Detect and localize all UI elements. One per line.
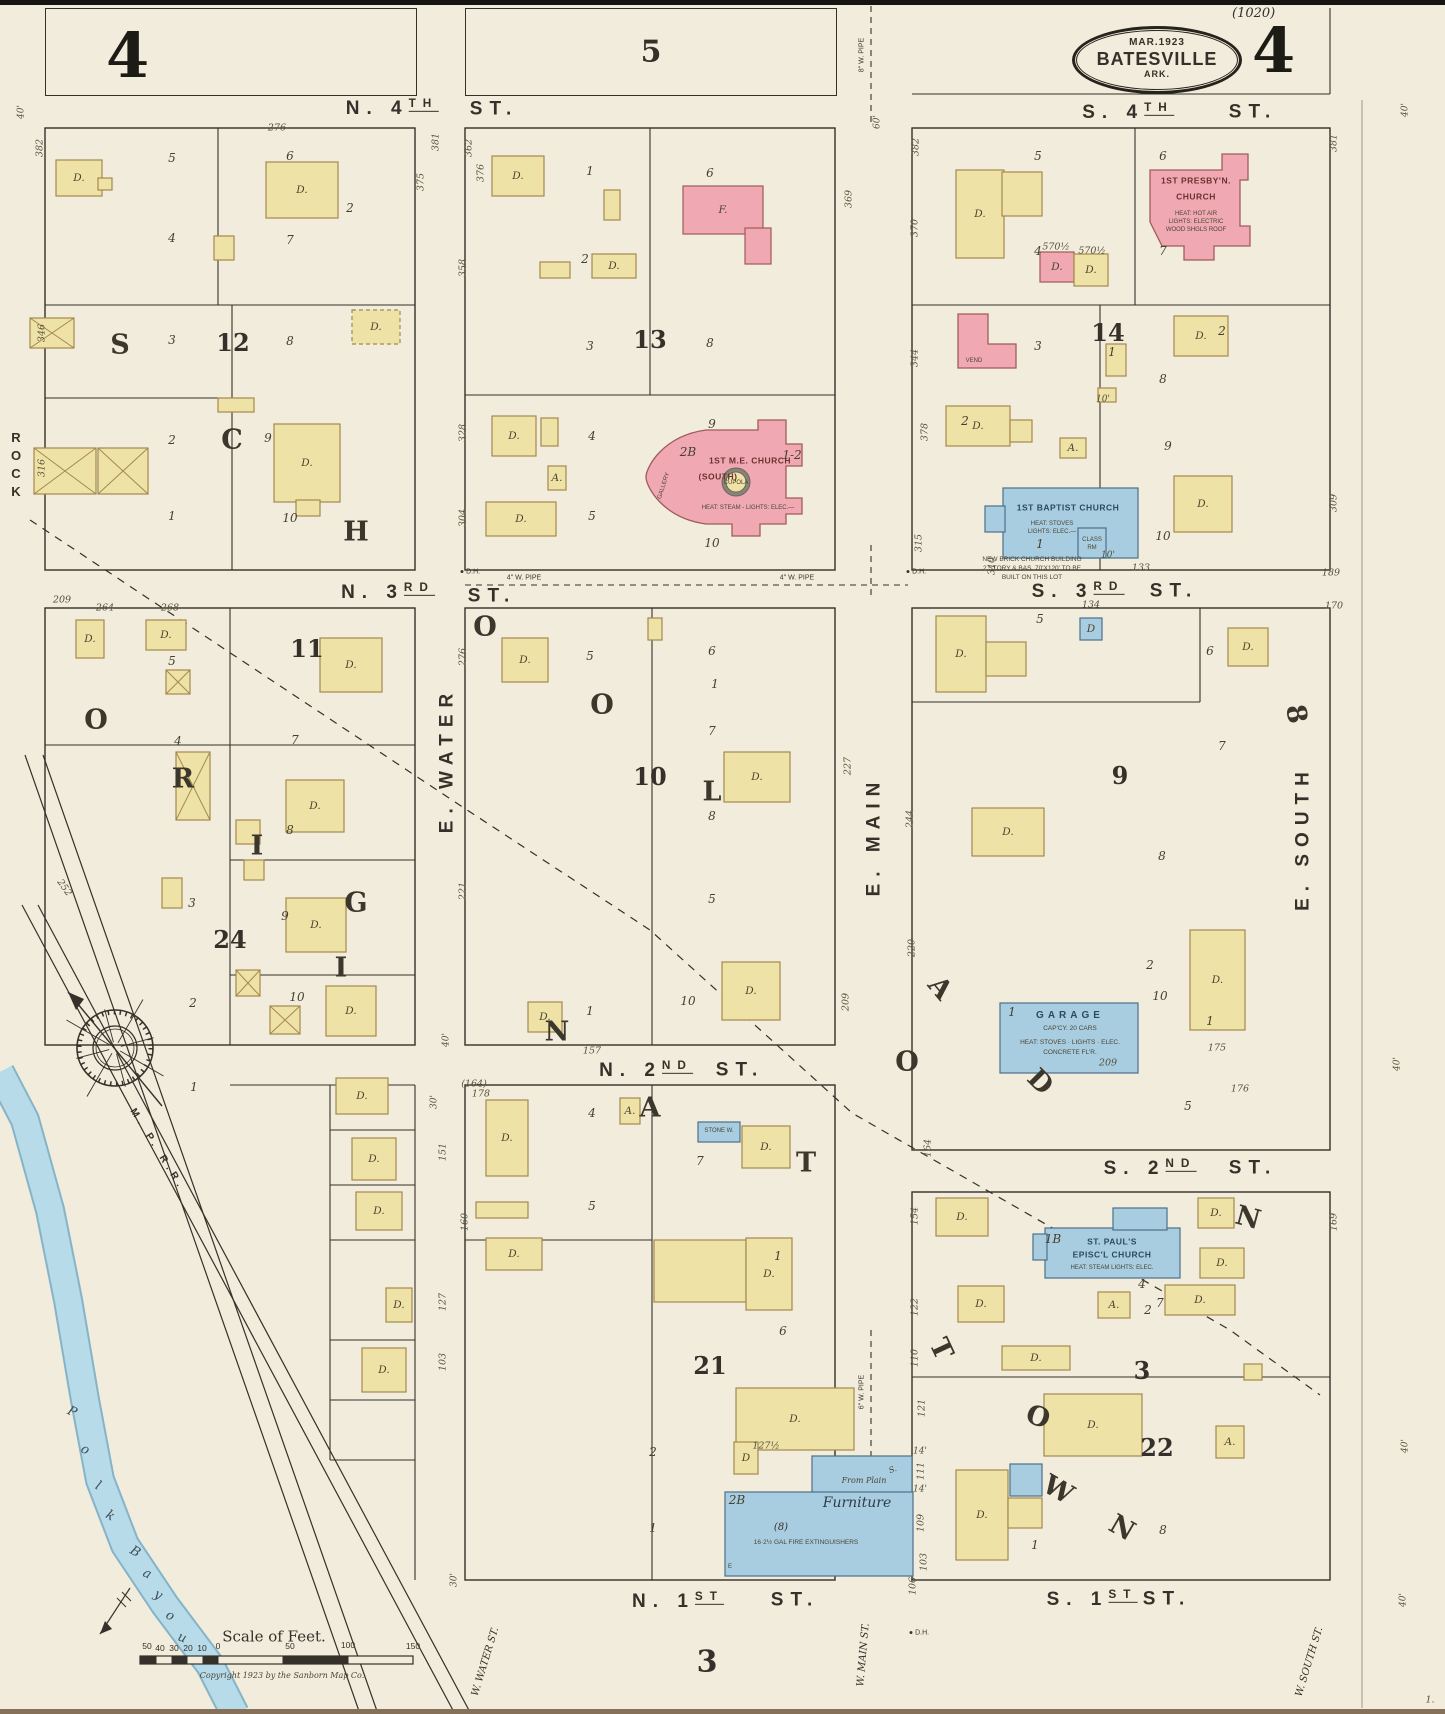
map-label: 30' bbox=[451, 1573, 460, 1587]
map-label: HEAT: STOVES · LIGHTS · ELEC. bbox=[1020, 1040, 1120, 1047]
map-label: W bbox=[1038, 1471, 1078, 1510]
map-label: 127½ bbox=[752, 1441, 779, 1451]
map-label: 1 bbox=[1036, 538, 1044, 550]
building-label: D. bbox=[976, 1510, 987, 1521]
map-label: 10 bbox=[633, 765, 666, 789]
map-label: 2 bbox=[649, 1446, 657, 1458]
map-label: 2 bbox=[1218, 325, 1226, 337]
building-label: D. bbox=[393, 1300, 404, 1311]
map-label: T bbox=[925, 1334, 958, 1364]
map-label: 346 bbox=[37, 324, 47, 342]
building-label: F. bbox=[719, 205, 728, 216]
building-label: D. bbox=[160, 630, 171, 641]
map-label: (8) bbox=[774, 1523, 788, 1533]
building-label: D bbox=[742, 1453, 750, 1464]
adjacent-sheet-number-bottom: 3 bbox=[697, 1645, 718, 1680]
map-label: 4 bbox=[588, 1107, 596, 1119]
building-label: D. bbox=[508, 1249, 519, 1260]
building-label: D. bbox=[1242, 642, 1253, 653]
map-label: HEAT: STOVES bbox=[1031, 521, 1073, 527]
building-label: D. bbox=[955, 649, 966, 660]
map-label: 2 bbox=[346, 202, 354, 214]
map-label: 10 bbox=[704, 537, 719, 549]
map-label: ST. bbox=[771, 1591, 819, 1610]
map-label: S bbox=[110, 332, 130, 359]
map-label: 9 bbox=[1112, 764, 1129, 788]
building-label: A. bbox=[552, 473, 563, 484]
map-label: M. P. R.R. bbox=[128, 1107, 187, 1193]
map-label: 30' bbox=[431, 1095, 440, 1109]
map-label: 252 bbox=[55, 878, 73, 898]
map-label: ● D.H. bbox=[460, 569, 480, 576]
map-label: 1 bbox=[190, 1081, 198, 1093]
map-label: B bbox=[128, 1544, 143, 1560]
map-label: 4 bbox=[588, 430, 596, 442]
map-date: MAR.1923 bbox=[1075, 38, 1239, 48]
map-label: 164 bbox=[923, 1139, 933, 1157]
map-label: 22 bbox=[1140, 1436, 1173, 1460]
map-label: 21 bbox=[693, 1354, 726, 1378]
map-label: 221 bbox=[458, 882, 468, 900]
map-label: Furniture bbox=[823, 1496, 892, 1510]
map-label: 14 bbox=[1091, 321, 1124, 345]
map-label: CHURCH bbox=[1176, 192, 1216, 201]
map-label: S. 1ST bbox=[1047, 1589, 1138, 1609]
building-label: A. bbox=[1225, 1437, 1236, 1448]
map-label: o bbox=[164, 1608, 176, 1623]
map-label: 8" W. PIPE bbox=[859, 38, 866, 72]
building-label: D. bbox=[373, 1206, 384, 1217]
map-label: 4" W. PIPE bbox=[507, 575, 541, 582]
building-label: D. bbox=[512, 171, 523, 182]
map-label: 1 bbox=[649, 1522, 657, 1534]
map-label: 1 bbox=[1108, 346, 1116, 358]
building-label: D. bbox=[1051, 262, 1062, 273]
map-label: 370 bbox=[910, 219, 920, 237]
map-label: 268 bbox=[161, 603, 179, 613]
map-label: 0 bbox=[216, 1642, 221, 1651]
map-label: 378 bbox=[920, 423, 930, 441]
map-label: GALLERY bbox=[657, 472, 671, 500]
map-label: l bbox=[93, 1479, 103, 1492]
map-label: 169 bbox=[1329, 1213, 1339, 1231]
map-label: 103 bbox=[919, 1553, 929, 1571]
building-label: D. bbox=[751, 772, 762, 783]
map-label: 382 bbox=[35, 139, 45, 157]
map-label: 6 bbox=[1206, 645, 1214, 657]
building-label: D. bbox=[508, 431, 519, 442]
map-label: 10 bbox=[1152, 990, 1167, 1002]
map-label: 4 bbox=[1138, 1278, 1146, 1290]
map-label: 40' bbox=[1402, 1439, 1411, 1453]
map-label: 2B bbox=[729, 1494, 745, 1506]
map-label: 151 bbox=[438, 1143, 448, 1161]
map-label: 1 bbox=[586, 1005, 594, 1017]
building-label: D. bbox=[309, 801, 320, 812]
map-label: 60' bbox=[874, 115, 883, 129]
map-label: ST. PAUL'S bbox=[1087, 1237, 1137, 1246]
map-label: 8 bbox=[1159, 373, 1167, 385]
map-label: 375 bbox=[416, 173, 426, 191]
map-label: 7 bbox=[1156, 1297, 1164, 1309]
map-label: 40' bbox=[1402, 103, 1411, 117]
map-label: 315 bbox=[914, 534, 924, 552]
adjacent-sheet-number-top: 5 bbox=[641, 35, 662, 70]
map-label: E. WATER bbox=[438, 687, 457, 833]
map-label: VEND bbox=[966, 358, 983, 364]
map-label: 3 bbox=[168, 334, 176, 346]
map-label: P bbox=[65, 1404, 78, 1419]
map-label: 178 bbox=[472, 1089, 490, 1099]
map-label: ST. bbox=[716, 1061, 764, 1080]
map-label: N. 3RD bbox=[341, 582, 435, 602]
building-label: D. bbox=[519, 655, 530, 666]
map-label: 8 bbox=[1281, 702, 1311, 725]
map-label: 10 bbox=[680, 995, 695, 1007]
map-label: 1ST PRESBY'N. bbox=[1161, 176, 1231, 185]
building-label: D. bbox=[310, 920, 321, 931]
map-label: LIGHTS: ELECTRIC bbox=[1169, 219, 1224, 225]
map-label: A bbox=[640, 1095, 661, 1122]
building-label: D. bbox=[975, 1299, 986, 1310]
map-label: 309 bbox=[1329, 494, 1339, 512]
map-label: N bbox=[545, 1019, 570, 1046]
map-label: 109 bbox=[916, 1514, 926, 1532]
map-label: N. 2ND bbox=[599, 1060, 693, 1080]
map-label: 106 bbox=[908, 1577, 918, 1595]
map-label: 5 bbox=[168, 152, 176, 164]
building-label: D. bbox=[345, 1006, 356, 1017]
map-label: 2 bbox=[581, 253, 589, 265]
map-label: 376 bbox=[476, 164, 486, 182]
title-oval: MAR.1923 BATESVILLE ARK. bbox=[1072, 26, 1242, 94]
map-label: 6 bbox=[706, 167, 714, 179]
map-label: ST. bbox=[470, 100, 518, 119]
map-label: 30 bbox=[169, 1644, 178, 1653]
map-label: 10 bbox=[282, 512, 297, 524]
map-label: 40' bbox=[443, 1033, 452, 1047]
map-label: C bbox=[221, 427, 243, 454]
map-label: 244 bbox=[905, 810, 915, 828]
map-label: 8 bbox=[286, 824, 294, 836]
map-label: 170 bbox=[1325, 601, 1343, 611]
map-label: 1. bbox=[1425, 1695, 1434, 1705]
building-label: A. bbox=[625, 1106, 636, 1117]
map-label: GARAGE bbox=[1036, 1011, 1104, 1021]
map-label: STONE W. bbox=[704, 1128, 733, 1134]
building-label: D. bbox=[73, 173, 84, 184]
building-label: D. bbox=[515, 514, 526, 525]
map-label: 2 bbox=[961, 415, 969, 427]
map-label: 13 bbox=[633, 328, 666, 352]
map-label: W. SOUTH ST. bbox=[1295, 1626, 1326, 1698]
map-label: O bbox=[473, 614, 497, 641]
sheet-bottom-edge bbox=[0, 1709, 1445, 1714]
map-label: 276 bbox=[458, 648, 468, 666]
building-label: D. bbox=[745, 986, 756, 997]
map-label: 10 bbox=[1155, 530, 1170, 542]
map-label: 127 bbox=[438, 1293, 448, 1311]
map-label: 5 bbox=[586, 650, 594, 662]
map-label: 9 bbox=[1164, 440, 1172, 452]
map-label: 7 bbox=[696, 1155, 704, 1167]
map-label: 5 bbox=[588, 510, 596, 522]
map-label: 3 bbox=[188, 897, 196, 909]
map-label: 6 bbox=[708, 645, 716, 657]
map-label: 133 bbox=[1132, 563, 1150, 573]
map-label: HEAT: HOT AIR bbox=[1175, 211, 1217, 217]
map-label: 150 bbox=[406, 1642, 420, 1651]
building-label: D. bbox=[763, 1269, 774, 1280]
map-label: 1-2 bbox=[782, 449, 801, 461]
map-label: 10' bbox=[1101, 552, 1115, 561]
map-label: 5 bbox=[1036, 613, 1044, 625]
building-label: D. bbox=[1197, 499, 1208, 510]
map-label: 276 bbox=[268, 123, 286, 133]
map-label: 2 bbox=[1144, 1304, 1152, 1316]
map-label: 1 bbox=[774, 1250, 782, 1262]
map-label: A bbox=[923, 971, 957, 1004]
map-label: 189 bbox=[1322, 568, 1340, 578]
map-label: 4 bbox=[168, 232, 176, 244]
map-label: LIGHTS: ELEC.— bbox=[1028, 529, 1076, 535]
map-label: 14' bbox=[913, 1486, 927, 1495]
map-label: 9 bbox=[281, 910, 289, 922]
map-label: 4 bbox=[174, 735, 182, 747]
map-label: 2B bbox=[680, 446, 696, 458]
page-number-left: 4 bbox=[106, 25, 149, 87]
map-label: a bbox=[141, 1566, 154, 1581]
map-label: ● D.H. bbox=[909, 1630, 929, 1637]
map-labels-layer: D.D.D.D.D.D.D.A.D.F.D.D.D.D.A.D.D.D.D.D.… bbox=[0, 0, 1445, 1714]
map-label: 382 bbox=[911, 138, 921, 156]
map-label: 362 bbox=[464, 139, 474, 157]
map-label: 7 bbox=[286, 234, 294, 246]
map-label: ● D.H. bbox=[906, 569, 926, 576]
map-label: ST. bbox=[1143, 1590, 1191, 1609]
map-label: 381 bbox=[431, 133, 441, 151]
map-label: 209 bbox=[1099, 1058, 1117, 1068]
map-label: 40' bbox=[18, 105, 27, 119]
map-label: O bbox=[895, 1049, 919, 1076]
map-label: Copyright 1923 by the Sanborn Map Co. bbox=[200, 1672, 365, 1680]
map-label: 160 bbox=[460, 1213, 470, 1231]
map-label: 40 bbox=[155, 1644, 164, 1653]
map-label: S. 2ND bbox=[1104, 1158, 1197, 1178]
map-label: 2 STORY & BAS. 70'X120' TO BE bbox=[983, 566, 1081, 573]
map-label: 10 bbox=[197, 1644, 206, 1653]
map-label: 227 bbox=[843, 757, 853, 775]
building-label: D. bbox=[760, 1142, 771, 1153]
map-label: 40' bbox=[1400, 1593, 1409, 1607]
building-label: D bbox=[1087, 624, 1095, 635]
map-label: 264 bbox=[96, 603, 114, 613]
map-label: 2 bbox=[168, 434, 176, 446]
map-label: H bbox=[343, 519, 369, 546]
map-label: 121 bbox=[917, 1399, 927, 1417]
map-label: 3 bbox=[586, 340, 594, 352]
map-label: 122 bbox=[910, 1298, 920, 1316]
map-label: 570½ bbox=[1042, 242, 1069, 252]
map-label: 1ST M.E. CHURCH bbox=[709, 456, 791, 465]
map-label: 220 bbox=[907, 939, 917, 957]
map-label: 8 bbox=[708, 810, 716, 822]
map-label: E. SOUTH bbox=[1294, 765, 1313, 911]
map-label: 316 bbox=[37, 459, 47, 477]
map-label: S. 4TH bbox=[1082, 102, 1174, 122]
building-label: D. bbox=[1002, 827, 1013, 838]
map-label: 7 bbox=[1218, 740, 1226, 752]
map-label: HEAT: STEAM LIGHTS: ELEC. bbox=[1071, 1265, 1154, 1271]
map-label: ST. bbox=[1229, 1159, 1277, 1178]
sanborn-map-sheet: D.D.D.D.D.D.D.A.D.F.D.D.D.D.A.D.D.D.D.D.… bbox=[0, 0, 1445, 1714]
map-label: 209 bbox=[53, 595, 71, 605]
map-label: 103 bbox=[438, 1353, 448, 1371]
map-label: CLASS bbox=[1082, 537, 1102, 543]
building-label: D. bbox=[1195, 331, 1206, 342]
map-label: o bbox=[79, 1442, 92, 1457]
map-label: 4 bbox=[1034, 245, 1042, 257]
header-box-center: 5 bbox=[465, 8, 837, 96]
building-label: D. bbox=[1085, 265, 1096, 276]
map-label: O bbox=[84, 707, 108, 734]
map-label: W. MAIN ST. bbox=[856, 1623, 871, 1687]
building-label: A. bbox=[1109, 1300, 1120, 1311]
building-label: D. bbox=[1087, 1420, 1098, 1431]
map-label: 5 bbox=[168, 655, 176, 667]
map-label: O bbox=[590, 692, 614, 719]
map-label: ST. bbox=[1229, 103, 1277, 122]
map-label: I bbox=[335, 955, 348, 982]
map-label: 358 bbox=[458, 259, 468, 277]
map-label: T bbox=[796, 1150, 816, 1177]
building-label: D. bbox=[974, 209, 985, 220]
map-label: 10 bbox=[289, 991, 304, 1003]
map-label: 1ST BAPTIST CHURCH bbox=[1017, 503, 1120, 512]
map-label: 157 bbox=[583, 1046, 601, 1056]
map-label: 7 bbox=[291, 734, 299, 746]
building-label: D. bbox=[370, 322, 381, 333]
map-label: N. 1ST bbox=[632, 1591, 724, 1611]
building-label: D. bbox=[296, 185, 307, 196]
map-label: 11 bbox=[290, 637, 323, 661]
building-label: D. bbox=[368, 1154, 379, 1165]
map-label: 7 bbox=[1159, 245, 1167, 257]
map-label: 100 bbox=[341, 1641, 355, 1650]
building-label: D. bbox=[608, 261, 619, 272]
map-label: 1 bbox=[1206, 1015, 1214, 1027]
map-label: HEAT: STEAM - LIGHTS: ELEC.— bbox=[702, 505, 795, 511]
page-number-right: 4 bbox=[1252, 20, 1295, 82]
map-label: R bbox=[172, 766, 194, 793]
header-box-left: 4 bbox=[45, 8, 417, 96]
map-label: 5 bbox=[588, 1200, 596, 1212]
map-label: 8 bbox=[706, 337, 714, 349]
map-label: From Plain bbox=[842, 1477, 887, 1485]
map-label: 8 bbox=[1159, 1524, 1167, 1536]
map-label: 9 bbox=[264, 432, 272, 444]
map-label: 1 bbox=[711, 678, 719, 690]
map-label: S. 3RD bbox=[1032, 581, 1125, 601]
map-label: N. 4TH bbox=[346, 98, 439, 118]
map-city: BATESVILLE bbox=[1075, 50, 1239, 68]
map-label: 1B bbox=[1045, 1233, 1061, 1245]
building-label: D. bbox=[972, 421, 983, 432]
sheet-top-edge bbox=[0, 0, 1445, 5]
map-label: 1 bbox=[168, 510, 176, 522]
map-label: 16·2½ GAL FIRE EXTINGUISHERS bbox=[754, 1540, 859, 1547]
building-label: D. bbox=[1194, 1295, 1205, 1306]
map-label: I bbox=[251, 833, 264, 860]
map-label: 14' bbox=[913, 1448, 927, 1457]
map-label: 8 bbox=[286, 335, 294, 347]
map-label: ST. bbox=[468, 587, 516, 606]
map-label: 6 bbox=[1159, 150, 1167, 162]
map-label: E bbox=[728, 1564, 732, 1570]
map-label: 40' bbox=[1394, 1057, 1403, 1071]
map-label: k bbox=[103, 1508, 116, 1523]
map-label: L bbox=[703, 779, 722, 806]
map-label: 1 bbox=[586, 165, 594, 177]
map-label: 5 bbox=[708, 893, 716, 905]
map-label: ST. bbox=[1150, 582, 1198, 601]
map-label: 6" W. PIPE bbox=[859, 1375, 866, 1409]
map-label: 12 bbox=[216, 331, 249, 355]
map-label: 10' bbox=[1096, 396, 1110, 405]
map-label: 24 bbox=[213, 928, 246, 952]
map-label: 209 bbox=[841, 993, 851, 1011]
map-label: 176 bbox=[1231, 1084, 1249, 1094]
map-label: 111 bbox=[916, 1462, 926, 1480]
map-label: 4" W. PIPE bbox=[780, 575, 814, 582]
building-label: D. bbox=[356, 1091, 367, 1102]
building-label: D. bbox=[501, 1133, 512, 1144]
map-label: 310 bbox=[987, 557, 997, 575]
map-label: 328 bbox=[458, 424, 468, 442]
map-label: 175 bbox=[1208, 1043, 1226, 1053]
map-label: 50 bbox=[142, 1642, 151, 1651]
map-label: 9 bbox=[708, 418, 716, 430]
map-label: CAP'CY. 20 CARS bbox=[1043, 1026, 1097, 1033]
map-label: Scale of Feet. bbox=[222, 1630, 326, 1645]
map-label: O bbox=[1022, 1400, 1053, 1433]
map-label: 20 bbox=[183, 1644, 192, 1653]
map-label: 8 bbox=[1158, 850, 1166, 862]
building-label: D. bbox=[1216, 1258, 1227, 1269]
building-label: D. bbox=[1212, 975, 1223, 986]
building-label: D. bbox=[378, 1365, 389, 1376]
building-label: D. bbox=[345, 660, 356, 671]
map-label: D bbox=[1022, 1064, 1058, 1100]
map-label: G bbox=[344, 890, 367, 917]
map-label: 304 bbox=[458, 509, 468, 527]
map-label: 2 bbox=[189, 997, 197, 1009]
map-label: 1 bbox=[1008, 1006, 1016, 1018]
map-label: 7 bbox=[708, 725, 716, 737]
map-label: 5 bbox=[1184, 1100, 1192, 1112]
map-state: ARK. bbox=[1075, 70, 1239, 79]
map-label: CONCRETE FL'R. bbox=[1043, 1050, 1097, 1057]
map-label: RM bbox=[1087, 545, 1096, 551]
building-label: D. bbox=[301, 458, 312, 469]
building-label: D. bbox=[1210, 1208, 1221, 1219]
building-label: D. bbox=[1030, 1353, 1041, 1364]
map-label: 3 bbox=[1134, 1359, 1151, 1383]
building-label: A. bbox=[1068, 443, 1079, 454]
map-label: N bbox=[1105, 1510, 1140, 1546]
map-label: WOOD SHGLS ROOF bbox=[1166, 227, 1226, 233]
map-label: 50 bbox=[285, 1642, 294, 1651]
